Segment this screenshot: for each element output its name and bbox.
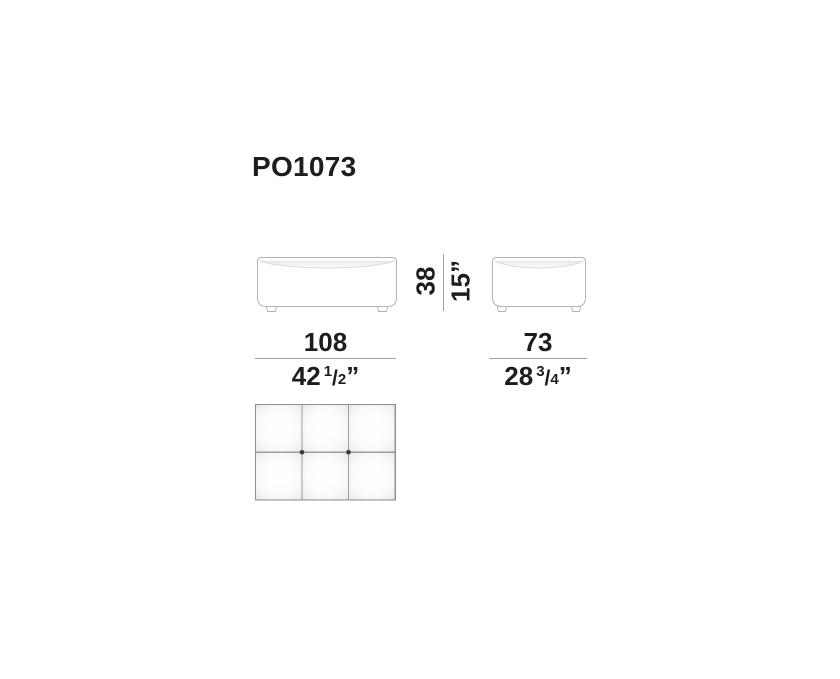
cushion-panel (302, 405, 349, 453)
foot-right (572, 307, 581, 312)
width-cm-value: 108 (255, 328, 396, 356)
height-inch-value: 15” (446, 260, 477, 302)
tuft-button-dot (346, 450, 351, 455)
cushion-panel (349, 452, 396, 500)
foot-left (498, 307, 507, 312)
width-inch-frac-denominator: 2 (338, 371, 346, 388)
depth-dimension-line (489, 358, 587, 359)
depth-inch-value: 283/4” (489, 360, 587, 397)
foot-right (378, 307, 388, 312)
depth-inch-whole: 28 (504, 361, 533, 391)
cushion-panel (349, 405, 396, 453)
width-inch-mark: ” (346, 361, 359, 391)
depth-dimension: 73 283/4” (489, 328, 587, 397)
width-dimension-line (255, 358, 396, 359)
width-inch-whole: 42 (292, 361, 321, 391)
depth-cm-value: 73 (489, 328, 587, 356)
height-dimension-line (443, 254, 444, 311)
width-dimension: 108 421/2” (255, 328, 396, 397)
cushion-panel (256, 405, 303, 453)
top-view-drawing (255, 404, 396, 501)
height-cm-value: 38 (411, 267, 442, 296)
spec-sheet: PO1073 38 15” 108 (0, 0, 840, 679)
cushion-panel (256, 452, 303, 500)
width-inch-value: 421/2” (255, 360, 396, 397)
depth-inch-frac-numerator: 3 (536, 363, 544, 380)
tuft-button-dot (300, 450, 305, 455)
side-view-drawing (492, 257, 586, 314)
product-code: PO1073 (252, 151, 357, 183)
front-view-drawing (257, 257, 397, 314)
width-inch-frac-slash: / (332, 367, 338, 390)
width-inch-frac-numerator: 1 (324, 363, 332, 380)
depth-inch-mark: ” (559, 361, 572, 391)
foot-left (267, 307, 277, 312)
cushion-panel (302, 452, 349, 500)
depth-inch-frac-denominator: 4 (550, 371, 558, 388)
